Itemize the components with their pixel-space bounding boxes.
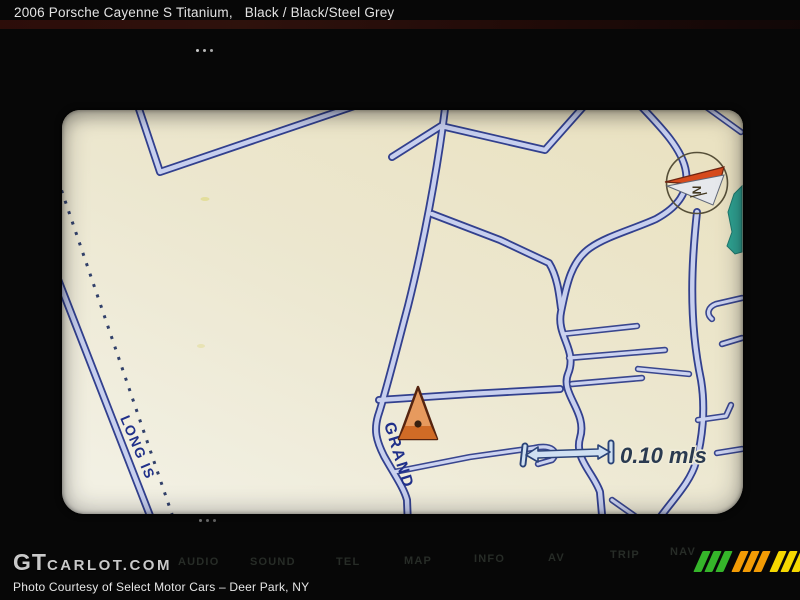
navigation-screen: LONG IS GRAND N 0.10 mls	[62, 110, 743, 514]
dash-button-nav: NAV	[670, 546, 696, 558]
reflection-dots-top	[196, 49, 199, 52]
gtcarlot-logo-gt: GT	[13, 549, 47, 575]
scale-arrow-icon	[526, 445, 610, 462]
listing-title-car: 2006 Porsche Cayenne S Titanium,	[14, 5, 233, 20]
screen-glare-spots	[197, 197, 210, 348]
gtcarlot-logo-rest: CARLOT.COM	[47, 557, 172, 574]
dash-button-audio: AUDIO	[178, 556, 219, 568]
listing-title-color: Black / Black/Steel Grey	[245, 5, 395, 20]
railroad-line	[62, 180, 176, 514]
scale-distance-label: 0.10 mls	[620, 443, 707, 468]
dash-button-map: MAP	[404, 555, 432, 567]
dash-button-trip: TRIP	[610, 549, 640, 561]
water-area	[727, 186, 742, 254]
reflection-dots-bottom	[199, 519, 202, 522]
dashboard-glare	[0, 20, 800, 29]
stripes-logo-icon	[698, 551, 800, 572]
compass-north-label: N	[690, 186, 704, 195]
dash-button-tel: TEL	[336, 556, 360, 568]
navigation-map: LONG IS GRAND N 0.10 mls	[62, 110, 743, 514]
gtcarlot-logo: GTCARLOT.COM	[13, 549, 172, 576]
dash-button-sound: SOUND	[250, 556, 296, 568]
photo-credit: Photo Courtesy of Select Motor Cars – De…	[13, 580, 309, 594]
compass-icon: N	[665, 153, 728, 214]
dash-button-info: INFO	[474, 553, 505, 565]
dash-button-av: AV	[548, 552, 565, 564]
photo-page: 2006 Porsche Cayenne S Titanium,Black / …	[0, 0, 800, 600]
listing-title: 2006 Porsche Cayenne S Titanium,Black / …	[14, 5, 394, 20]
